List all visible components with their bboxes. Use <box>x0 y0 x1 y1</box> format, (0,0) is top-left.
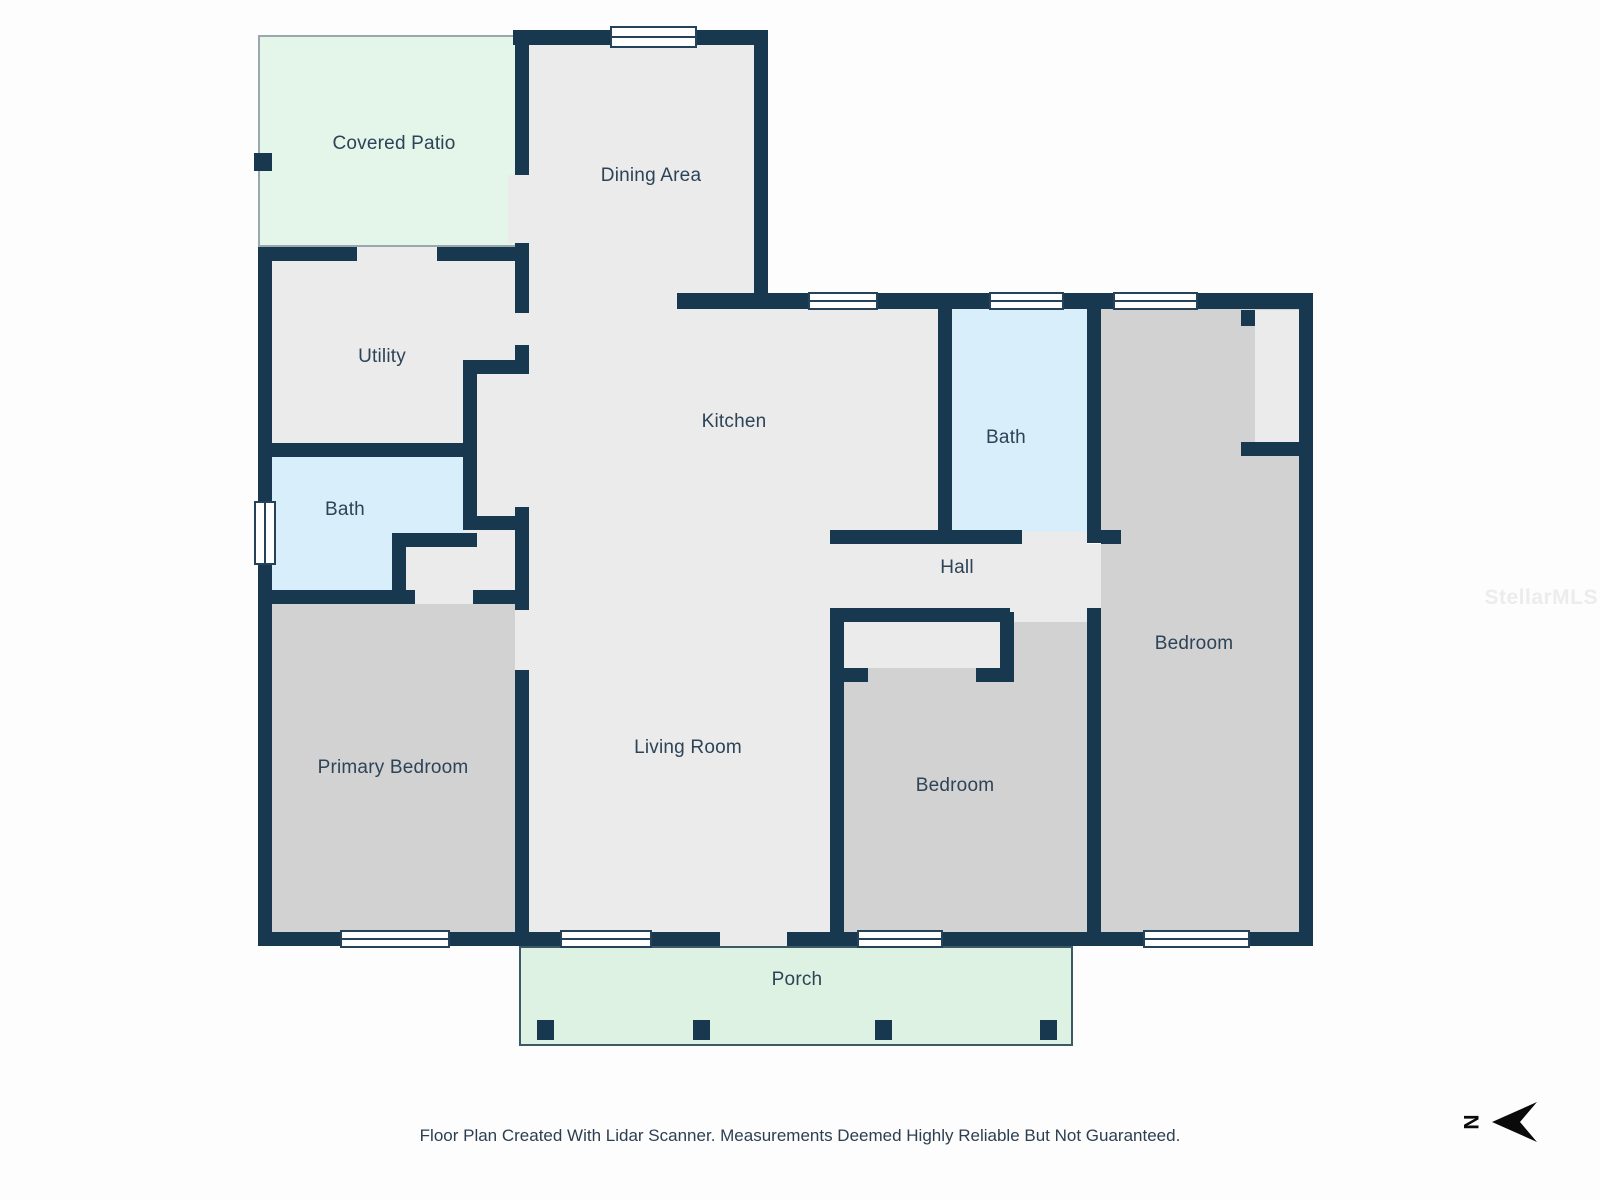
room-label-bath-right: Bath <box>986 427 1026 449</box>
window-icon <box>989 292 1064 310</box>
wall <box>515 345 529 374</box>
room-label-porch: Porch <box>772 969 823 991</box>
room-label-bedroom-right: Bedroom <box>1155 633 1234 655</box>
room-label-dining-area: Dining Area <box>601 165 701 187</box>
wall <box>258 565 272 946</box>
bath-primary-door-opening <box>415 590 473 604</box>
window-icon <box>560 930 652 948</box>
wall <box>1241 442 1299 456</box>
wall <box>515 670 529 932</box>
front-entry-opening <box>720 932 787 946</box>
wall <box>787 932 857 946</box>
wall <box>943 932 1143 946</box>
wall <box>1087 293 1101 543</box>
disclaimer-text: Floor Plan Created With Lidar Scanner. M… <box>0 1126 1600 1146</box>
room-label-hall: Hall <box>940 557 974 579</box>
wall <box>1101 530 1121 544</box>
window-icon <box>340 930 450 948</box>
wall <box>754 30 768 307</box>
bath-right-floor <box>952 309 1087 532</box>
floor-plan-canvas: Covered Patio Dining Area Utility Bath K… <box>0 0 1600 1200</box>
wall <box>1299 293 1313 946</box>
porch-post <box>537 1020 554 1040</box>
wall <box>265 443 477 457</box>
wall <box>830 608 844 932</box>
room-label-bedroom-bottom: Bedroom <box>916 775 995 797</box>
patio-utility-opening <box>357 247 437 261</box>
window-icon <box>1113 292 1198 310</box>
porch-post <box>875 1020 892 1040</box>
room-label-primary-bedroom: Primary Bedroom <box>318 757 469 779</box>
wall <box>1198 293 1313 309</box>
wall <box>258 247 272 503</box>
patio-post <box>254 153 272 171</box>
wall <box>473 590 529 604</box>
room-label-utility: Utility <box>358 346 406 368</box>
window-icon <box>610 26 697 48</box>
porch-floor <box>519 946 1073 1046</box>
porch-post <box>693 1020 710 1040</box>
wall <box>830 608 1010 622</box>
room-label-kitchen: Kitchen <box>702 411 767 433</box>
wall <box>392 533 477 547</box>
wall <box>258 247 357 261</box>
porch-post <box>1040 1020 1057 1040</box>
wall <box>515 243 529 313</box>
wall <box>450 932 560 946</box>
hall-bedroom-right-door-opening <box>1087 544 1101 608</box>
watermark: StellarMLS <box>1484 586 1598 610</box>
window-icon <box>808 292 878 310</box>
window-icon <box>1143 930 1250 948</box>
window-icon <box>857 930 943 948</box>
wall <box>1241 310 1255 326</box>
wall <box>830 530 1022 544</box>
wall <box>1087 608 1101 946</box>
room-label-bath-left: Bath <box>325 499 365 521</box>
wall <box>463 360 477 530</box>
bedroom-right-closet-floor <box>1255 310 1299 442</box>
patio-dining-opening <box>508 175 529 243</box>
wall <box>677 293 808 309</box>
wall <box>938 293 952 530</box>
wall <box>1250 932 1313 946</box>
wall <box>976 668 1014 682</box>
living-primary-door-opening <box>515 610 529 670</box>
bath-left-vestibule-floor <box>406 547 513 590</box>
window-icon <box>254 501 276 565</box>
wall <box>878 293 989 309</box>
wall <box>844 668 868 682</box>
bedroom-bottom-closet-floor <box>844 622 1000 668</box>
wall <box>515 30 529 175</box>
room-label-living-room: Living Room <box>634 737 742 759</box>
wall <box>652 932 720 946</box>
room-label-covered-patio: Covered Patio <box>332 133 455 155</box>
